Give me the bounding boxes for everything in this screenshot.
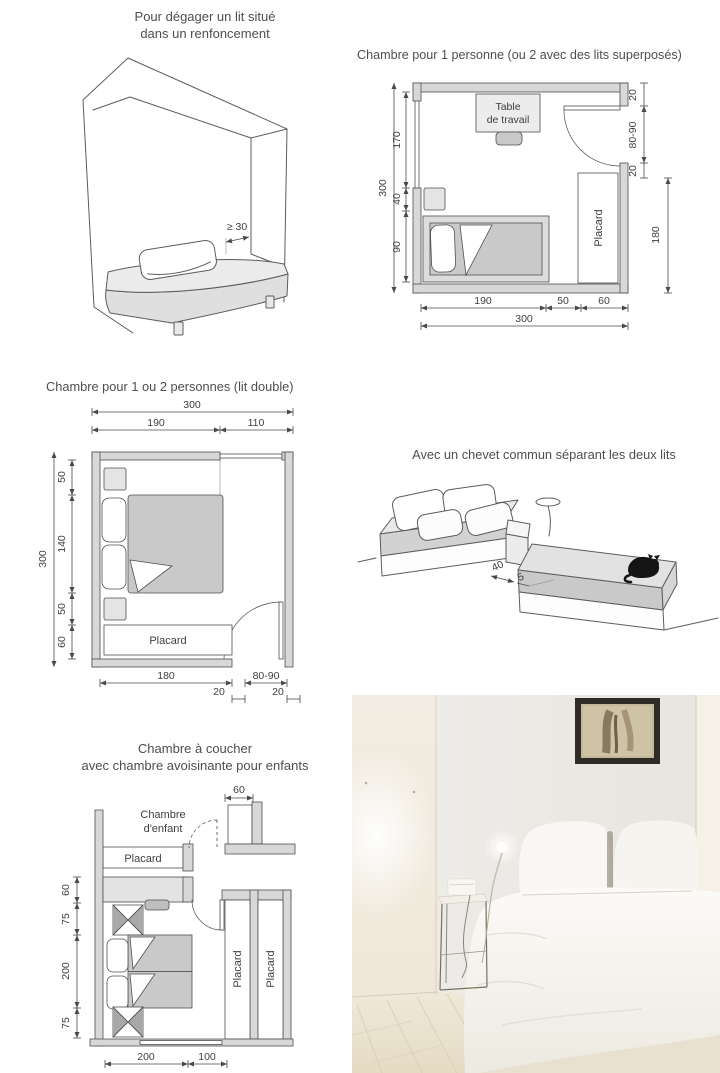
plan2-pillow-top — [102, 498, 126, 542]
plan3-left-wall — [95, 810, 103, 1046]
dim-right-post: 20 — [627, 165, 639, 177]
plan3-bottom-wall — [90, 1039, 293, 1046]
plan1-desk: Table de travail — [476, 94, 540, 145]
alcove-title-line2: dans un renfoncement — [55, 25, 355, 42]
plan2-bed — [102, 495, 223, 593]
plan3-side-table-bottom — [113, 1007, 143, 1037]
plan1-placard: Placard — [578, 173, 618, 283]
dim-left-top: 50 — [56, 471, 68, 483]
child-room-label-line1: Chambre — [140, 809, 185, 821]
plan3-side-table-top — [113, 905, 143, 935]
plan1-title: Chambre pour 1 personne (ou 2 avec des l… — [357, 47, 682, 64]
dim-bottom-bed: 190 — [474, 295, 492, 307]
plan3-title: Chambre à coucher avec chambre avoisinan… — [45, 740, 345, 774]
plan1-bed — [423, 216, 549, 282]
plan3-child-room: Chambre d'enfant Placard — [103, 802, 295, 871]
dim-clearance-label: ≥ 30 — [227, 221, 248, 233]
dim-right-top: 20 — [627, 89, 639, 101]
photo-artwork — [606, 711, 610, 753]
plan1-placard-label: Placard — [593, 209, 605, 246]
plan2-placard: Placard — [104, 625, 232, 655]
plan1-chair — [496, 132, 522, 145]
plan3-pillow-top — [107, 939, 128, 972]
right-bed — [518, 544, 677, 630]
plan3-floor-plan: 60 Chambre d'enfant Placard — [45, 777, 345, 1073]
plan2-door-swing — [224, 602, 281, 659]
dim-left-table-top: 75 — [60, 913, 72, 925]
plan1-nightstand — [424, 188, 445, 210]
alcove-title: Pour dégager un lit situé dans un renfon… — [55, 8, 355, 42]
dim-bottom-passage: 100 — [198, 1051, 216, 1063]
dim-left-beds: 200 — [60, 962, 72, 980]
dim-bottom-placard: 60 — [598, 295, 610, 307]
desk-label-line1: Table — [495, 101, 520, 113]
desk-label-line2: de travail — [487, 114, 530, 126]
dim-bottom-passage: 50 — [557, 295, 569, 307]
main-door-swing — [192, 900, 222, 930]
plan3-main-door — [192, 900, 224, 930]
photo-picture-frame — [575, 698, 660, 764]
plan2-window — [220, 454, 282, 458]
dim-closet-width: 60 — [233, 784, 245, 796]
alcove-bed — [106, 239, 288, 335]
plan3-dimension-top: 60 — [225, 784, 253, 802]
dim-left-total: 300 — [377, 179, 389, 197]
alcove-title-line1: Pour dégager un lit situé — [55, 8, 355, 25]
plan3-window — [140, 1041, 222, 1045]
plan2-dimensions-left: 300 50 140 50 60 — [37, 452, 76, 667]
dim-left-placard: 60 — [56, 636, 68, 648]
lamp — [536, 498, 560, 536]
dim-right-placard: 180 — [650, 226, 662, 244]
dim-left-wardrobe: 60 — [60, 884, 72, 896]
plan3-dimensions-left: 60 75 200 75 — [60, 877, 81, 1038]
dim-top-left: 190 — [147, 417, 165, 429]
plan1-door-leaf — [564, 106, 620, 110]
placard-left-label: Placard — [232, 950, 244, 987]
dim-left-bed: 90 — [391, 241, 403, 253]
photo-pillow-gap — [607, 831, 613, 893]
dim-left-bed: 140 — [56, 535, 68, 553]
plan2-nightstand-top — [104, 468, 126, 490]
plan3-pillow-bottom — [107, 976, 128, 1009]
child-room-label-line2: d'enfant — [144, 823, 183, 835]
plan2-door-leaf — [279, 602, 283, 659]
dim-bottom-gap-left: 20 — [213, 686, 225, 698]
plan3-title-line2: avec chambre avoisinante pour enfants — [45, 757, 345, 774]
placard-right-label: Placard — [265, 950, 277, 987]
dim-top-total: 300 — [183, 399, 201, 411]
plan3-dimensions-bottom: 200 100 — [105, 1051, 227, 1068]
plan2-nightstand-bottom — [104, 598, 126, 620]
dim-bottom-placard: 180 — [157, 670, 175, 682]
child-placard-label: Placard — [124, 853, 161, 865]
plan3-title-line1: Chambre à coucher — [45, 740, 345, 757]
dim-left-bottom: 50 — [56, 603, 68, 615]
plan2-dimensions-bottom: 180 80-90 20 20 — [100, 670, 300, 703]
dim-bottom-gap-right: 20 — [272, 686, 284, 698]
plan1-door-swing — [564, 110, 620, 166]
dim-right-door: 80-90 — [627, 121, 639, 148]
alcove-drawing: ≥ 30 — [60, 55, 360, 355]
book-page: Pour dégager un lit situé dans un renfon… — [0, 0, 720, 1073]
main-door-leaf — [220, 900, 224, 930]
dim-bottom-total: 300 — [515, 313, 533, 325]
plan1-floor-plan: Table de travail Placard 300 170 40 — [378, 68, 718, 346]
plan2-floor-plan: 300 190 110 — [38, 392, 328, 722]
plan2-pillow-bottom — [102, 545, 126, 589]
twin-beds-drawing: 40 5 — [358, 482, 718, 662]
child-closet — [228, 805, 252, 844]
photo-table-objects — [448, 879, 476, 895]
plan2-door — [224, 602, 283, 659]
dim-left-table-bottom: 75 — [60, 1017, 72, 1029]
plan1-window — [415, 101, 419, 188]
dim-top-right: 110 — [248, 417, 265, 429]
dim-left-window: 170 — [391, 131, 403, 149]
plan1-pillow — [430, 225, 456, 273]
plan2-placard-label: Placard — [149, 635, 186, 647]
twin-beds-title: Avec un chevet commun séparant les deux … — [368, 447, 720, 464]
bedroom-photo — [352, 695, 720, 1073]
plan3-beds — [107, 935, 192, 1009]
plan1-door — [564, 106, 620, 166]
dim-left-total: 300 — [37, 550, 49, 568]
alcove-dimension: ≥ 30 — [226, 221, 249, 254]
dim-left-nightstand: 40 — [391, 193, 403, 205]
dim-bottom-door: 80-90 — [253, 670, 280, 682]
plan3-placards: Placard Placard — [222, 890, 291, 1039]
dim-bottom-beds: 200 — [137, 1051, 155, 1063]
